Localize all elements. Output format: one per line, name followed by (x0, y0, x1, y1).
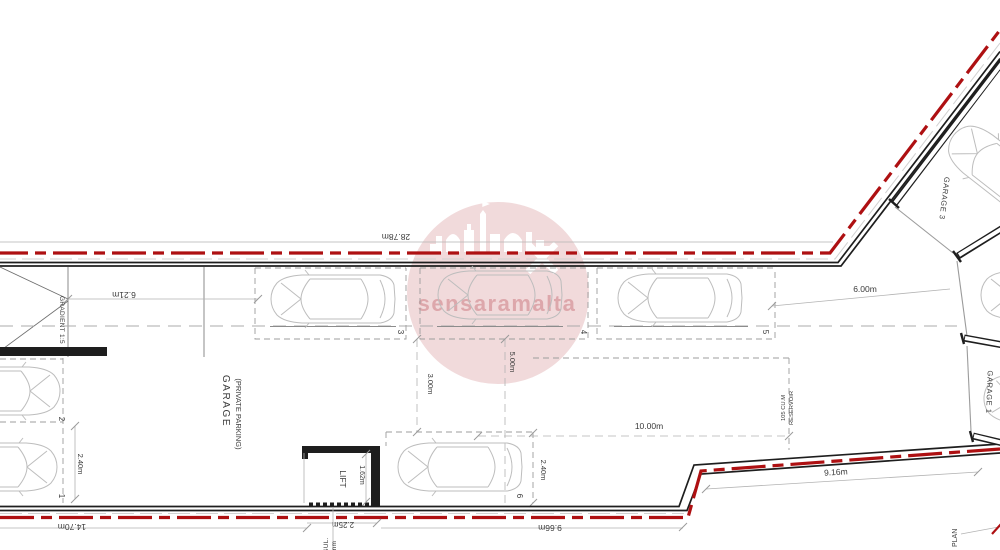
space-number-4: 4 (579, 330, 588, 335)
dim-space1-width: 2.40m (76, 454, 85, 475)
dim-lift-width: 2.25m (332, 520, 355, 529)
dim-10m: 10.00m (635, 421, 663, 431)
watermark-text: sensaramalta (418, 291, 577, 316)
dim-bottom-mid: 9.66m (538, 523, 562, 533)
floor-plan-canvas: sensaramalta 28.78m GRADIENT 1:5 6.21m (0, 0, 1000, 550)
garage-label-line2: (PRIVATE PARKING) (234, 378, 243, 450)
space-number-3: 3 (396, 330, 405, 335)
dim-ramp-width: 6.21m (112, 290, 136, 300)
plan-title: PLAN (952, 524, 1000, 547)
space-number-1: 1 (57, 494, 66, 499)
reservoir-label-line2: 105 CU.M (781, 395, 787, 421)
space-number-2: 2 (57, 417, 66, 422)
parking-column-left: 2 1 2.40m (0, 358, 85, 503)
wall-section (0, 347, 107, 356)
car-space-5 (618, 269, 742, 327)
dim-top-boundary: 28.78m (382, 232, 410, 242)
reservoir-label-line1: RESERVOIR (789, 391, 795, 425)
space-number-5: 5 (761, 330, 770, 335)
car-garage-2 (981, 266, 1000, 324)
garage1-label: GARAGE 1 (984, 370, 995, 413)
space-number-6: 6 (515, 494, 524, 499)
car-space-6 (398, 438, 522, 496)
dim-6m: 6.00m (853, 284, 877, 294)
lift-label: LIFT (338, 470, 348, 487)
ramp: GRADIENT 1:5 6.21m (0, 267, 262, 357)
garage-plan-drawing: sensaramalta 28.78m GRADIENT 1:5 6.21m (0, 0, 1000, 550)
lift: LIFT 1.62m (302, 446, 380, 507)
dim-bottom-left: 14.70m (58, 522, 86, 532)
garage1-lower-wall (970, 431, 1000, 443)
garage3-label: GARAGE 3 (937, 176, 951, 220)
bottom-dimensions: 14.70m 2.25m 50mm INSUL. 9.66m 9.16m (0, 466, 982, 550)
car-space-2 (0, 362, 60, 420)
bottom-boundary (0, 444, 1000, 518)
gradient-label: GRADIENT 1:5 (58, 296, 65, 344)
garage2-wall (953, 228, 1000, 262)
car-space-3 (271, 270, 395, 328)
dim-3m: 3.00m (426, 374, 435, 395)
car-space-1 (0, 438, 57, 496)
dim-bottom-right: 9.16m (824, 466, 848, 477)
dim-5m: 5.00m (508, 352, 517, 373)
drive-aisle-centerline (0, 326, 957, 327)
dim-space6-width: 2.40m (539, 460, 548, 481)
parking-space-6: 6 2.40m (386, 429, 548, 507)
insulation-note-line1: 50mm (331, 541, 338, 550)
garage-area-label: GARAGE (PRIVATE PARKING) (220, 375, 243, 450)
insulation-note-line2: INSUL. (323, 537, 330, 550)
dim-lift-interior: 1.62m (358, 465, 365, 485)
plan-label: PLAN (952, 529, 959, 547)
garage-label-line1: GARAGE (220, 375, 231, 427)
